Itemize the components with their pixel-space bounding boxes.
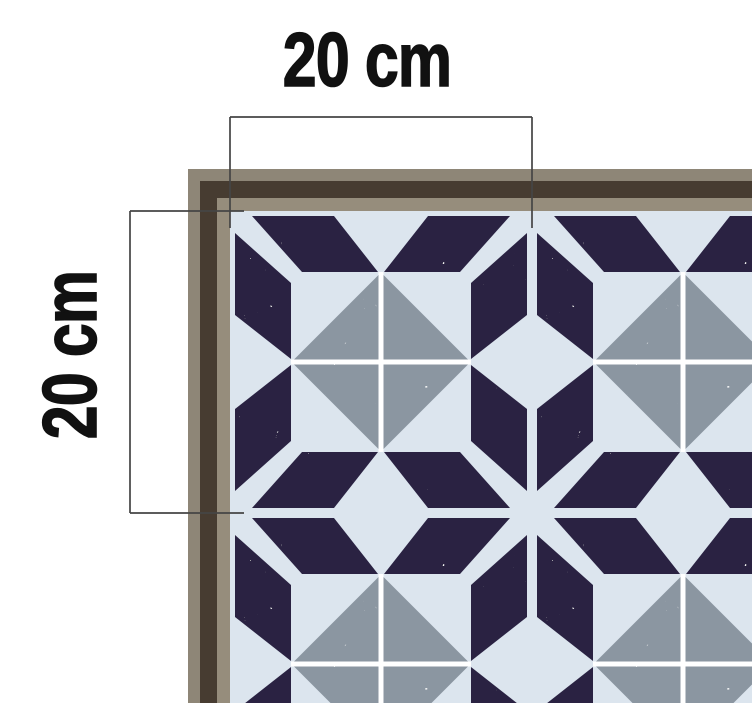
tile-dimension-diagram: 20 cm 20 cm [0, 0, 752, 703]
top-dimension-label: 20 cm [246, 23, 488, 99]
left-dimension-label: 20 cm [31, 234, 111, 476]
tile-pattern-field [230, 211, 752, 703]
